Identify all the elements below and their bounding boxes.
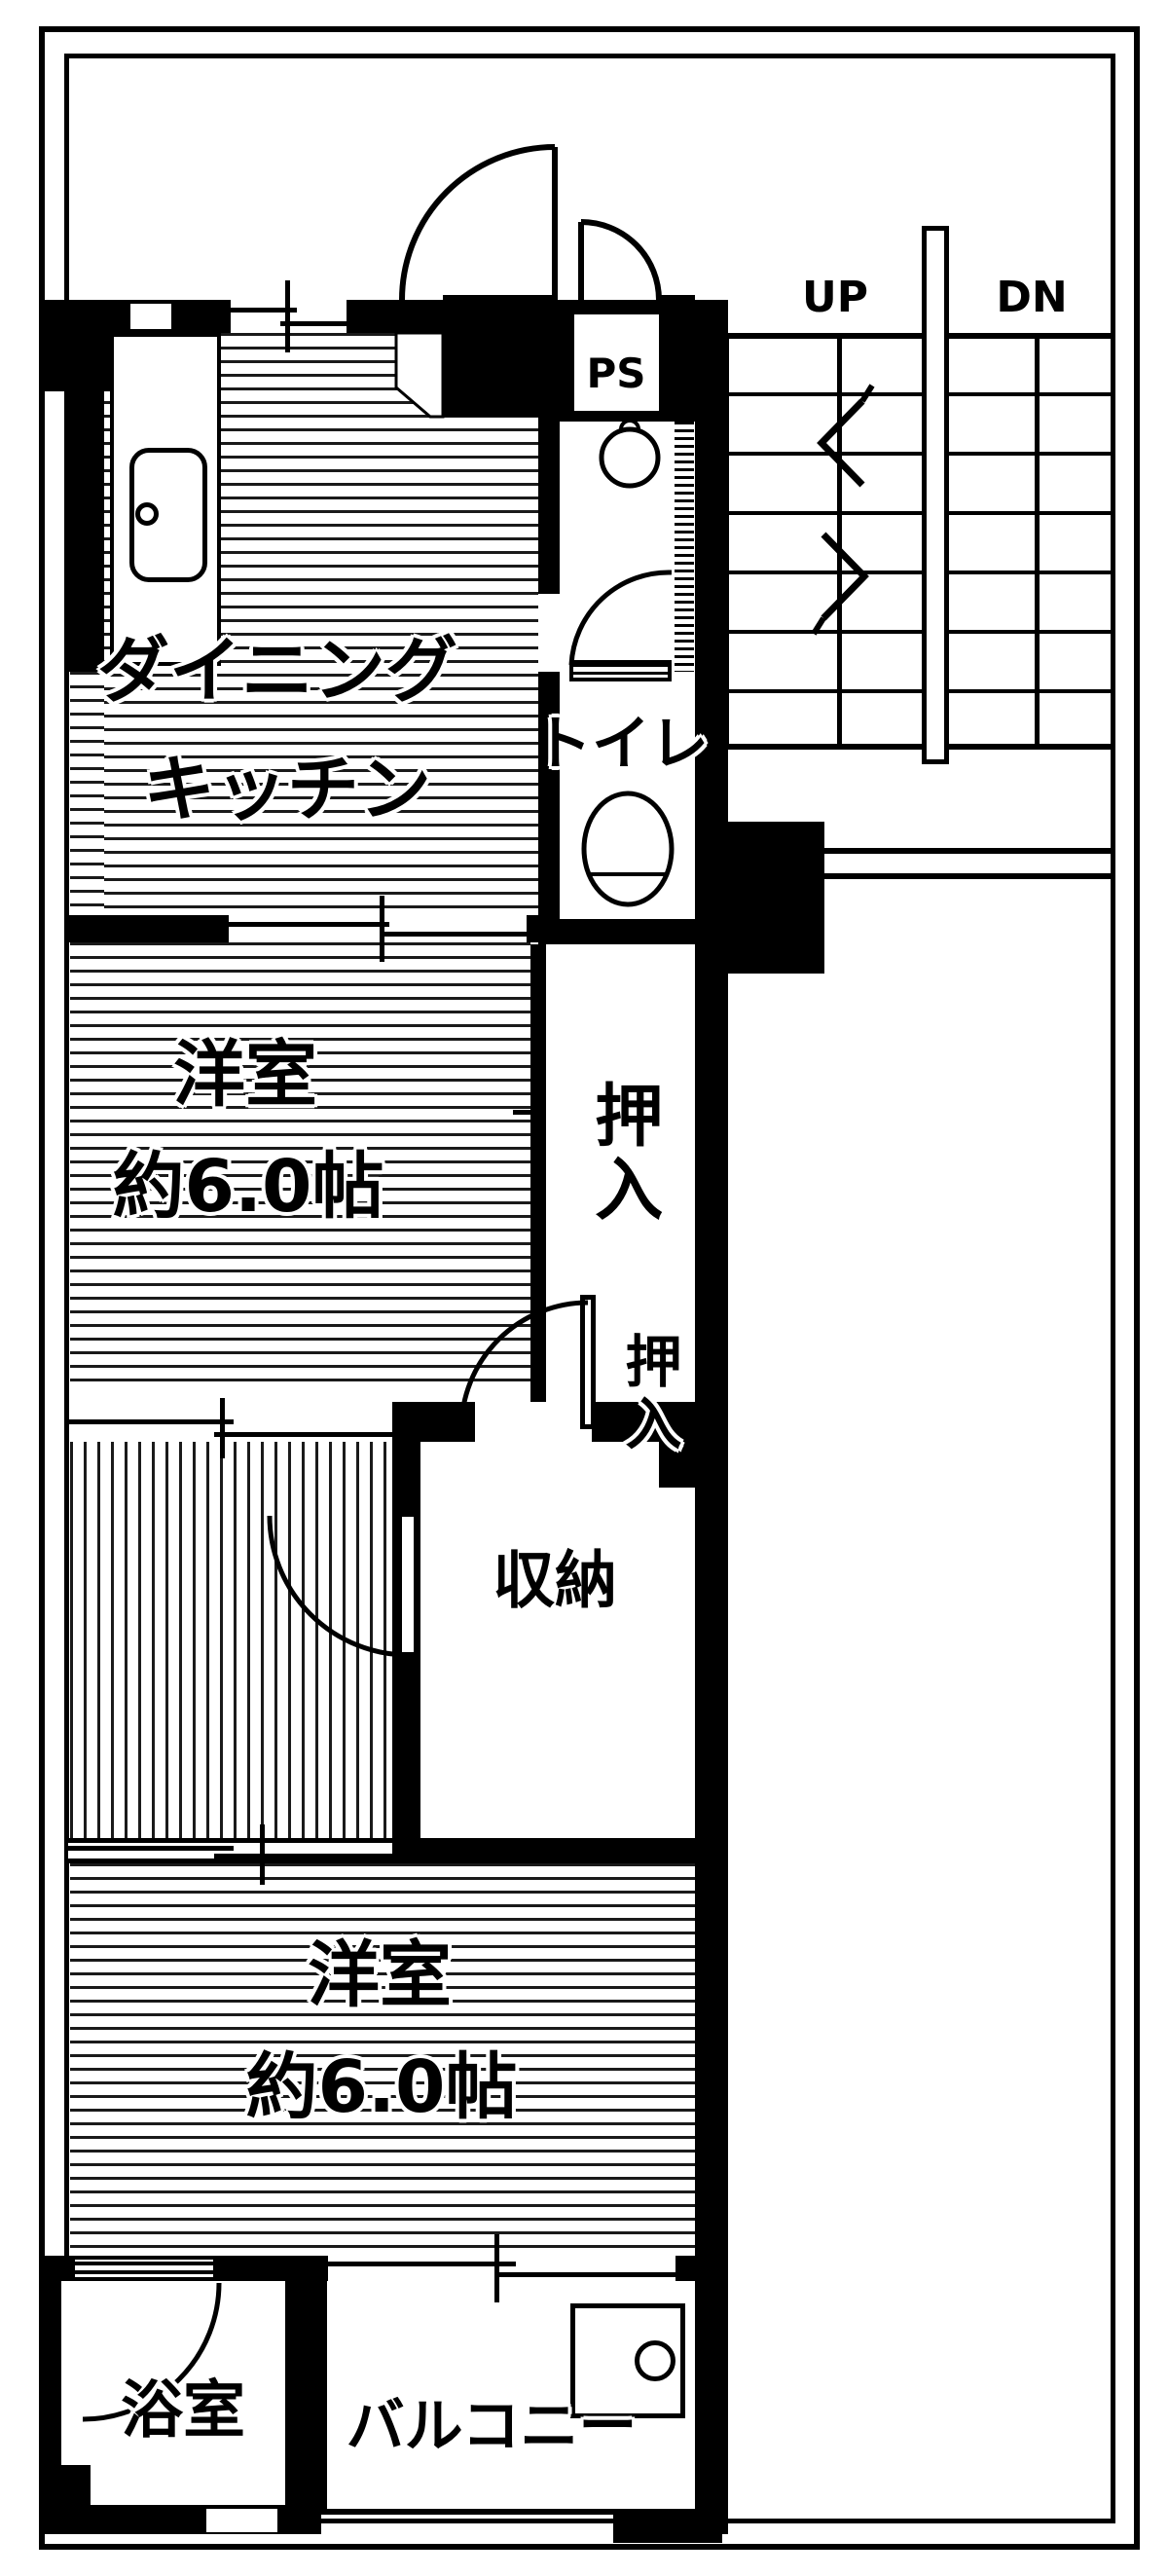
window-symbol xyxy=(130,329,171,333)
window-symbol xyxy=(75,2262,213,2265)
corridor-line xyxy=(824,873,1115,879)
corridor-line xyxy=(824,848,1115,854)
room-label-toilet: トイレ xyxy=(533,715,709,776)
window-tick xyxy=(260,1824,265,1885)
storage-door-leaf xyxy=(397,1512,419,1657)
room-storage xyxy=(420,1442,659,1838)
duct-hatch xyxy=(675,422,694,672)
sliding-door-symbol xyxy=(214,1432,392,1437)
sliding-door-symbol xyxy=(68,1846,234,1851)
stair-dn-label: DN xyxy=(996,276,1067,320)
closet-door-leaf xyxy=(580,1295,596,1429)
closet-door-gap xyxy=(475,1402,592,1442)
sliding-door-symbol xyxy=(68,1419,234,1424)
window-symbol xyxy=(328,2262,516,2266)
room-label-western-room-1: 洋室 xyxy=(173,1038,317,1114)
stair-flight-line xyxy=(837,333,842,750)
room-basin-anteroom xyxy=(560,422,675,662)
toilet-door-leaf xyxy=(569,660,672,681)
room-label-closet-upper: 押入 xyxy=(587,1080,659,1228)
room-size-western-room-1: 約6.0帖 xyxy=(112,1150,383,1226)
room-label-dining-kitchen-line1: ダイニング xyxy=(97,634,457,710)
wall xyxy=(659,295,695,419)
sliding-door-symbol xyxy=(380,932,527,937)
window-symbol xyxy=(280,321,347,326)
stair-top-edge xyxy=(723,333,1115,339)
window-tick xyxy=(380,896,384,962)
balcony-edge xyxy=(321,2281,327,2515)
window-gap xyxy=(328,2256,675,2281)
storage-side-pocket xyxy=(659,1488,695,1838)
room-label-dining-kitchen-line2: キッチン xyxy=(143,753,431,828)
room-label-closet-lower: 押入 xyxy=(619,1332,678,1456)
window-tick xyxy=(220,1398,225,1458)
room-label-bathroom: 浴室 xyxy=(121,2378,245,2444)
window-tick xyxy=(494,2234,499,2302)
stair-up-label: UP xyxy=(802,276,868,320)
sliding-door-symbol xyxy=(229,922,389,927)
entrance-wall-block xyxy=(443,295,558,417)
wall xyxy=(530,944,546,1402)
window-symbol xyxy=(130,300,171,304)
room-label-balcony: バルコニー xyxy=(347,2397,638,2458)
landing-wall-block xyxy=(695,822,824,974)
wall xyxy=(538,417,560,594)
sliding-door-gap xyxy=(229,915,527,942)
wall xyxy=(41,2281,61,2534)
sliding-door-symbol xyxy=(214,1854,392,1858)
room-label-pipe-space: PS xyxy=(586,352,645,395)
washing-machine-drain-icon xyxy=(635,2340,675,2381)
wall xyxy=(558,411,695,422)
wall xyxy=(558,300,574,417)
wall xyxy=(613,2515,722,2543)
hallway-floor xyxy=(70,1442,392,1838)
wall xyxy=(41,300,110,391)
wall-tick xyxy=(513,1110,546,1115)
wall xyxy=(347,300,443,333)
stair-flight-line xyxy=(1035,333,1040,750)
room-label-storage: 収納 xyxy=(493,1549,617,1614)
room-label-western-room-2: 洋室 xyxy=(308,1938,452,2014)
wall-gap xyxy=(206,2509,277,2532)
kitchen-faucet-icon xyxy=(135,502,159,526)
wall xyxy=(538,672,560,919)
window-symbol xyxy=(75,2270,213,2274)
wall xyxy=(562,300,672,314)
window-symbol xyxy=(496,2272,675,2277)
wall xyxy=(171,300,231,333)
stair-divider xyxy=(922,226,949,764)
wall xyxy=(61,2465,91,2505)
window-tick xyxy=(285,280,290,352)
floor-plan: UP DN PS ダイニング キッチン トイレ 洋室 約6.0帖 押入 押入 収… xyxy=(0,0,1168,2576)
wall xyxy=(285,2281,321,2534)
room-size-western-room-2: 約6.0帖 xyxy=(245,2050,517,2126)
